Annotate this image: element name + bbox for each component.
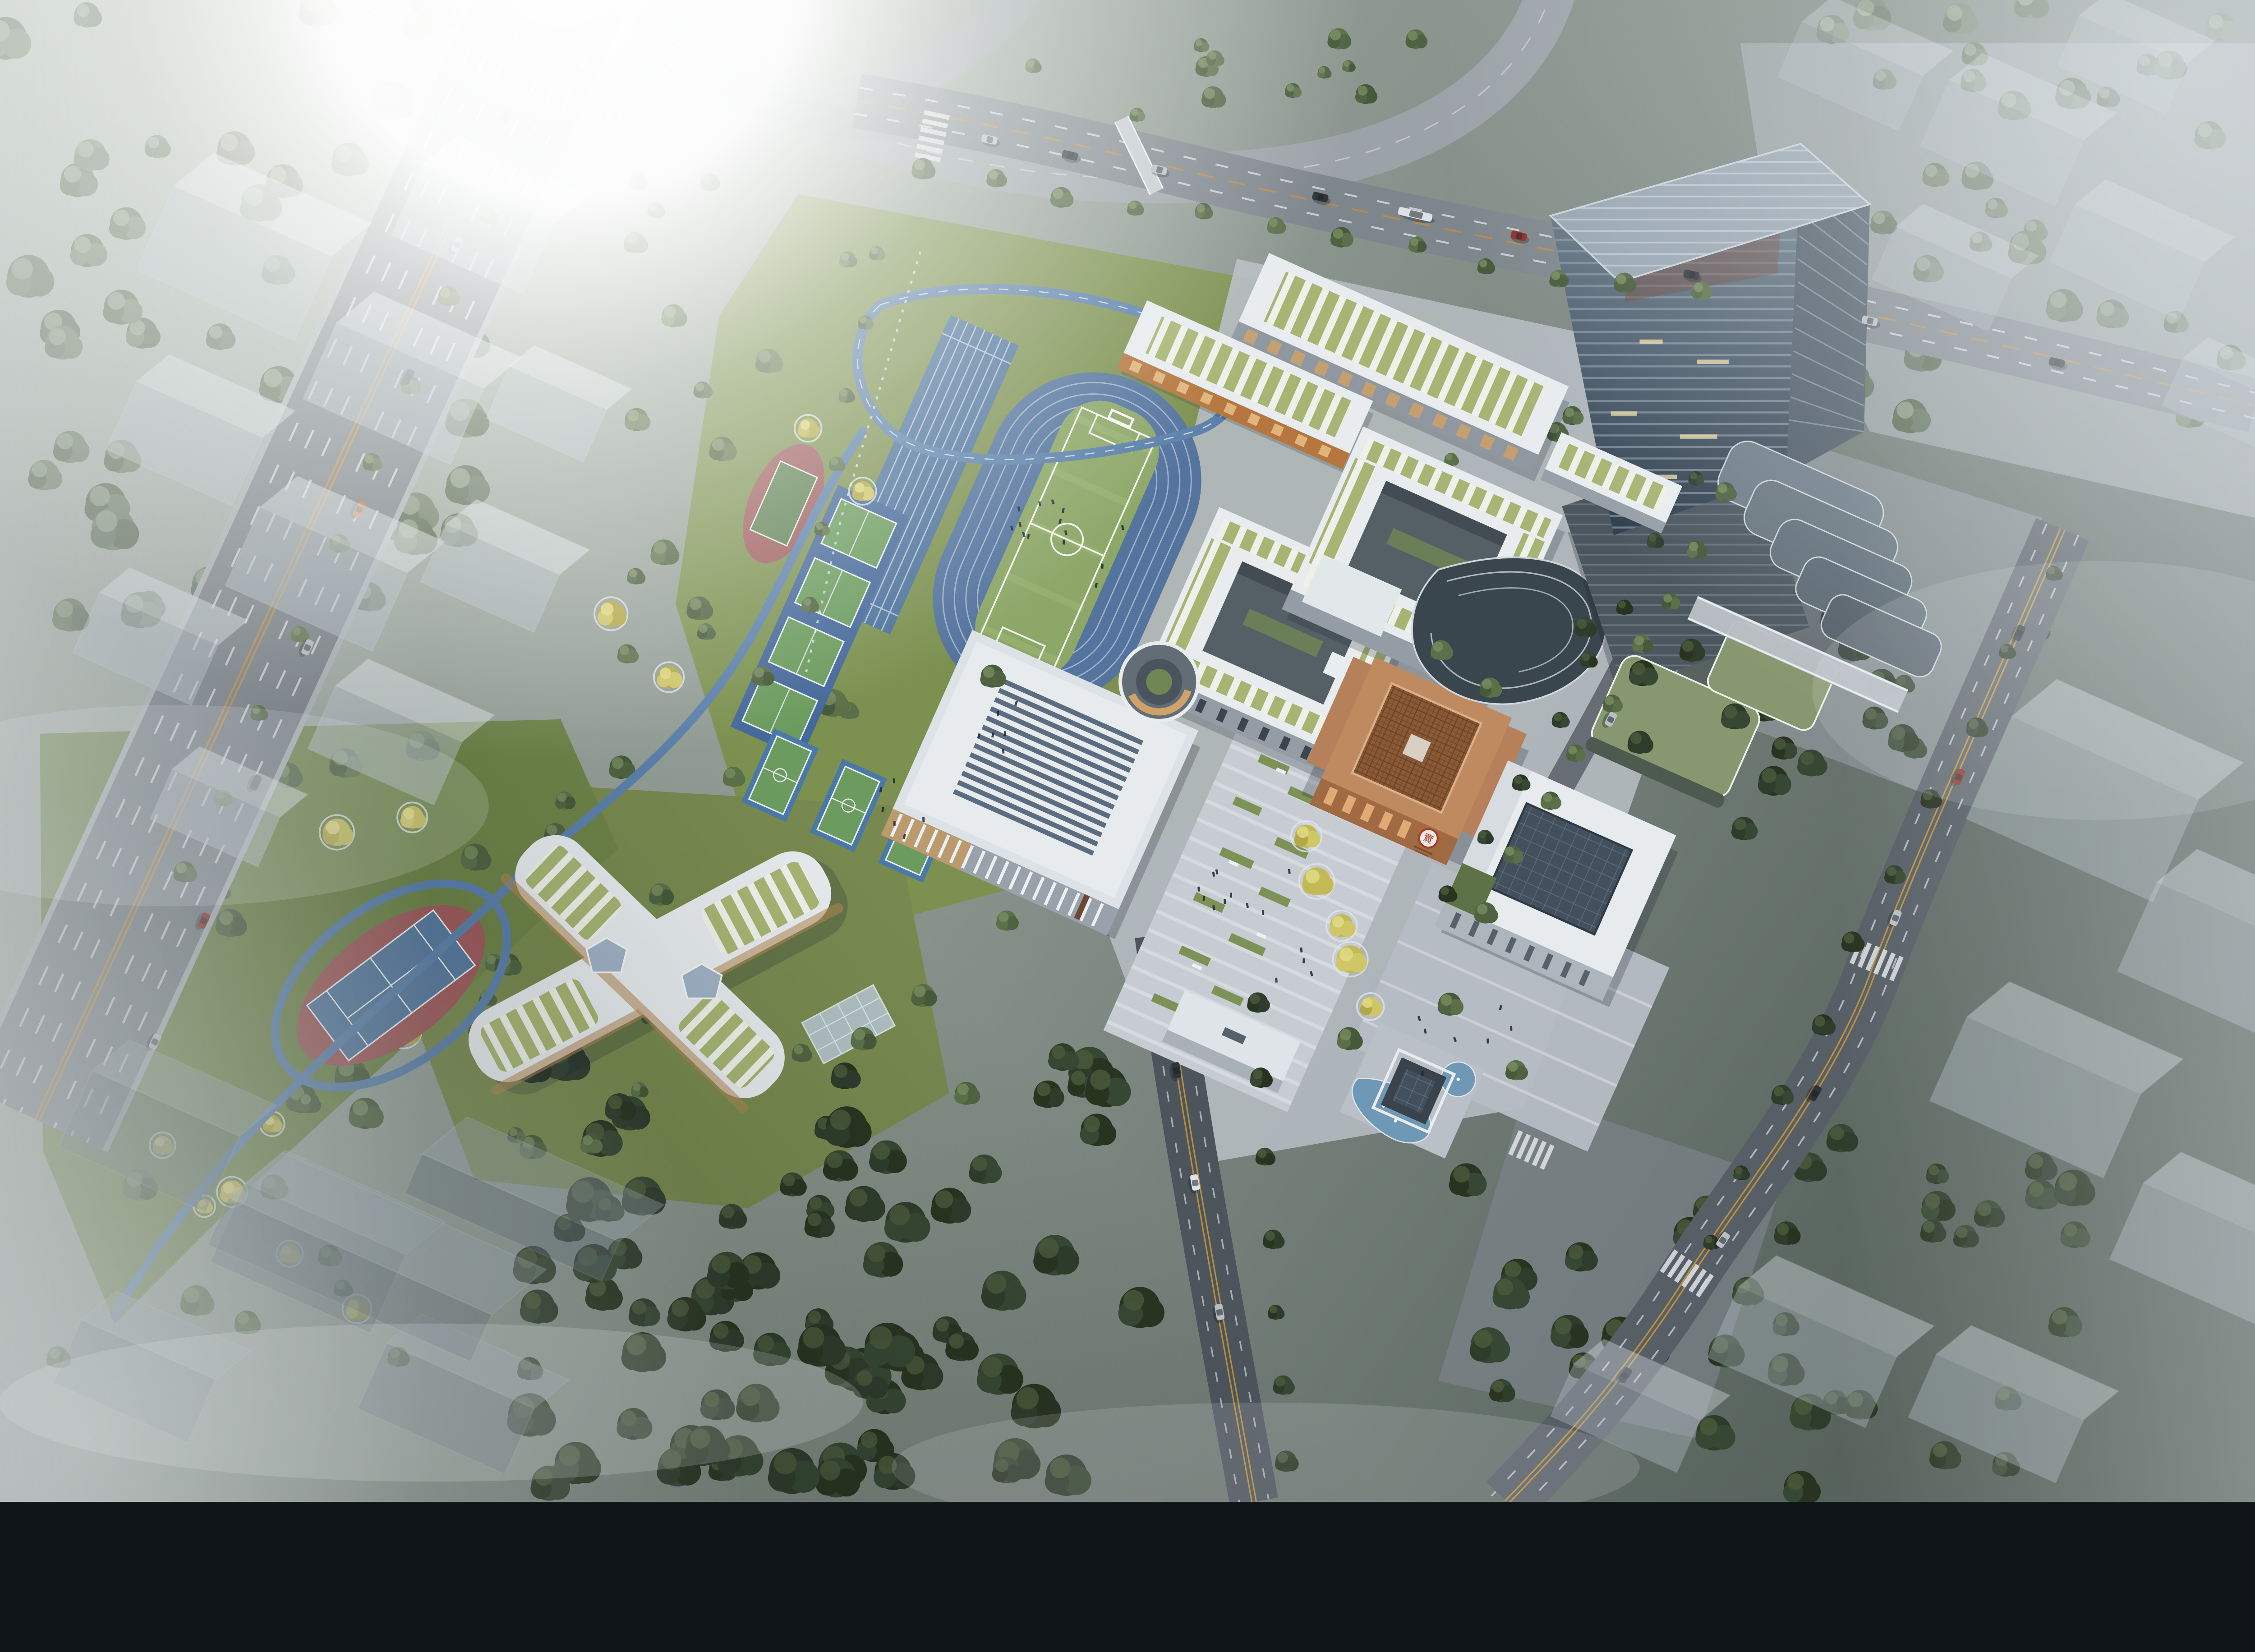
sun-flare (0, 0, 2255, 1502)
scene-canvas: 實 (0, 0, 2255, 1502)
aerial-rendering-stage: 實 (0, 0, 2255, 1502)
